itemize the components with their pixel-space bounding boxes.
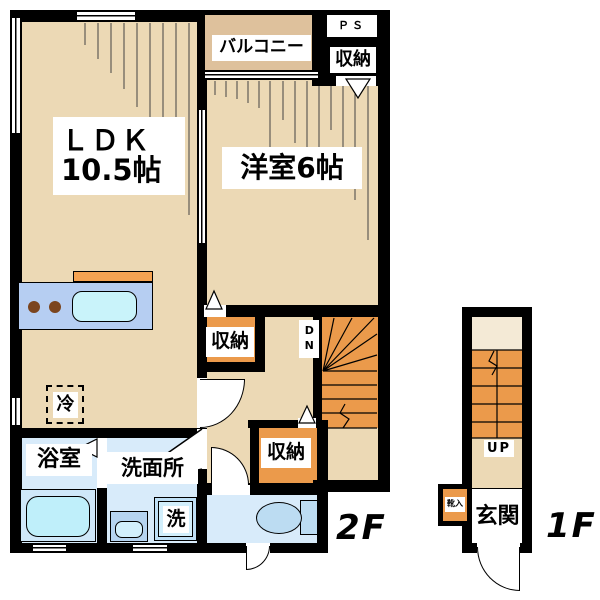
stairs-1f-landing	[472, 317, 522, 350]
bedroom-label: 洋室6帖	[222, 147, 362, 189]
balcony-rail	[205, 10, 312, 15]
storage-top-label: 収納	[330, 47, 376, 73]
storage-mid-doorway	[204, 305, 226, 317]
bathtub	[26, 496, 90, 537]
fridge-label: 冷	[53, 392, 78, 418]
window-bathroom	[33, 543, 66, 553]
stove-burner-right	[49, 301, 61, 313]
entrance-label: 玄関	[474, 499, 521, 535]
stove-burner-left	[28, 301, 40, 313]
window-left-upper	[10, 18, 22, 133]
wall-1f-right	[522, 307, 532, 553]
wall-left-corner	[10, 10, 22, 18]
wall-right	[378, 10, 390, 492]
stairs-1f-floor	[472, 350, 522, 438]
stairs-up-label: UP	[484, 440, 514, 457]
divider-wall-top	[197, 80, 207, 110]
washer-label: 洗	[163, 506, 189, 533]
room-divider-sliding-door	[197, 110, 207, 243]
bathroom-doorway	[97, 438, 107, 488]
wall-left-mid	[10, 133, 22, 398]
toilet-doorway	[212, 485, 250, 495]
wall-1f-top	[462, 307, 532, 317]
toilet-ext-door-swing	[246, 546, 270, 570]
window-washroom	[133, 543, 167, 553]
stairs-down-label: DN	[299, 320, 319, 358]
ldk-name: ＬＤＫ	[61, 126, 151, 155]
storage-bottom-label: 収納	[261, 438, 311, 468]
storage-bottom-left-wall	[250, 420, 259, 490]
floor-plan: ＬＤＫ 10.5帖 洋室6帖 バルコニー ＰＳ 収納 収納 収納 浴室 洗面所 …	[0, 0, 600, 600]
balcony-label: バルコニー	[212, 35, 311, 61]
storage-mid-label: 収納	[206, 327, 254, 357]
bathroom-label: 浴室	[26, 444, 92, 476]
toilet-tank	[300, 500, 318, 535]
storage-mid-bottom-wall	[197, 362, 265, 372]
balcony-left-wall	[197, 10, 205, 80]
wall-top-mid	[135, 10, 205, 22]
entrance-door-swing	[477, 547, 520, 591]
shoe-cabinet-label: 靴入	[445, 497, 465, 512]
ps-label: ＰＳ	[326, 14, 378, 38]
stairs-2f-floor	[322, 317, 378, 428]
floor-1f-label: 1F	[546, 506, 597, 546]
washroom-doorway	[197, 429, 207, 469]
toilet-bowl	[256, 502, 302, 534]
ldk-label: ＬＤＫ 10.5帖	[53, 117, 185, 195]
washbasin	[115, 521, 143, 538]
balcony-sliding-window	[205, 70, 318, 80]
window-top	[77, 10, 135, 22]
storage-top-doorway	[336, 76, 376, 86]
ldk-size: 10.5帖	[61, 155, 162, 185]
floor-2f-label: 2F	[336, 508, 387, 548]
storage-bottom-top-wall	[248, 420, 328, 428]
washroom-label: 洗面所	[107, 452, 198, 484]
kitchen-counter-edge	[73, 271, 153, 282]
storage-bottom-doorway	[298, 418, 316, 428]
bathroom-top-wall	[10, 428, 197, 438]
window-left-lower	[10, 398, 22, 425]
kitchen-sink	[72, 291, 137, 322]
